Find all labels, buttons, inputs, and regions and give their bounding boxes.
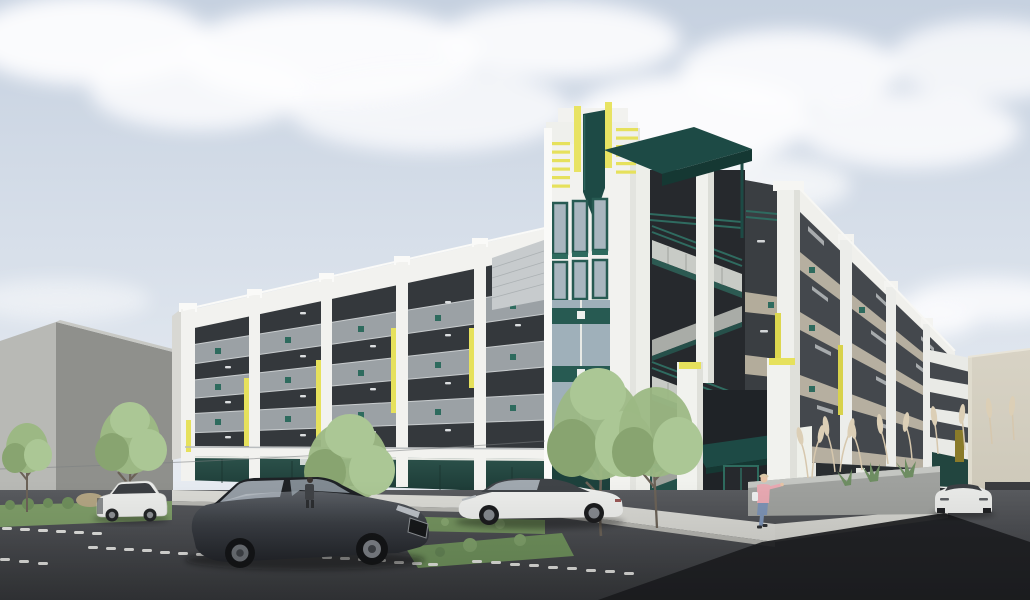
- vignette: [0, 0, 1030, 600]
- rendering-canvas: [0, 0, 1030, 600]
- architectural-rendering: [0, 0, 1030, 600]
